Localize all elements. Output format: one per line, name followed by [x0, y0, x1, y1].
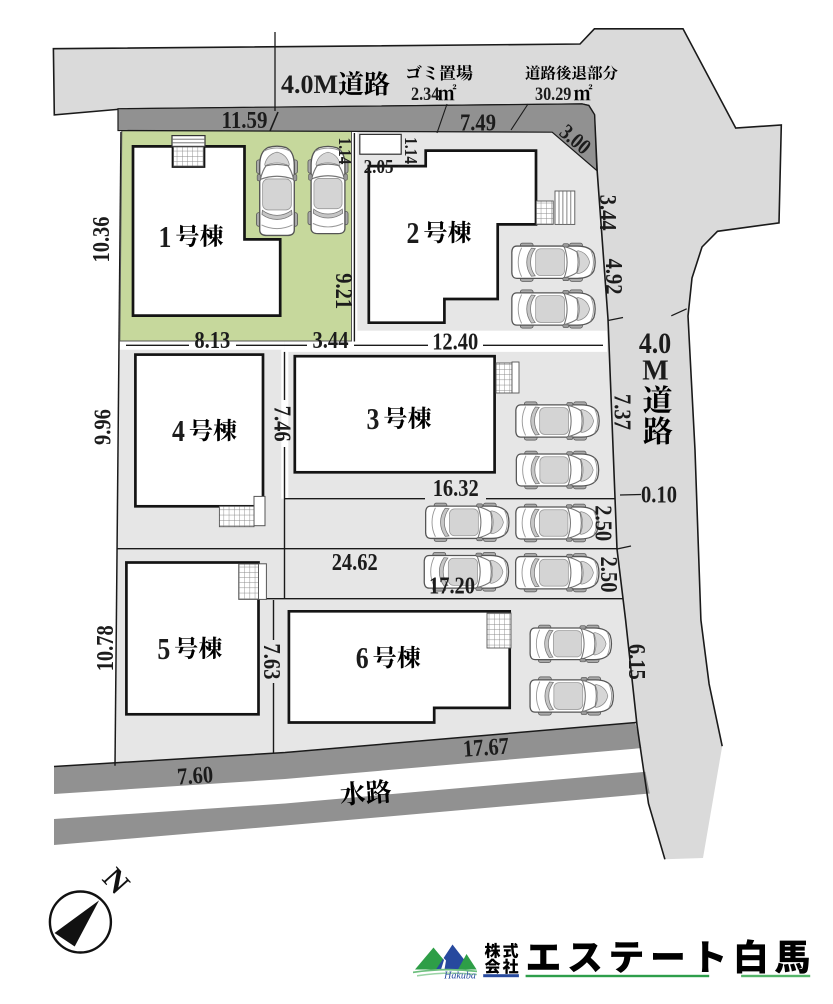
svg-text:30.29: 30.29: [535, 84, 571, 105]
svg-text:1.14: 1.14: [335, 138, 355, 165]
svg-text:2.50: 2.50: [595, 557, 621, 593]
svg-text:2.34: 2.34: [411, 84, 440, 105]
svg-text:12.40: 12.40: [432, 330, 478, 356]
svg-text:3.44: 3.44: [313, 328, 349, 354]
svg-text:1: 1: [159, 220, 172, 254]
svg-text:2.50: 2.50: [590, 505, 616, 541]
svg-text:6: 6: [356, 641, 369, 675]
svg-text:10.78: 10.78: [93, 625, 119, 671]
svg-text:3: 3: [367, 402, 380, 436]
svg-text:4: 4: [172, 414, 185, 448]
svg-text:2.05: 2.05: [364, 156, 394, 178]
svg-text:24.62: 24.62: [332, 550, 378, 576]
svg-text:5: 5: [157, 632, 170, 666]
svg-text:2: 2: [407, 216, 420, 250]
svg-text:4.92: 4.92: [600, 259, 626, 295]
svg-text:7.49: 7.49: [460, 111, 496, 137]
svg-text:4.0M: 4.0M: [281, 70, 338, 99]
svg-text:7.37: 7.37: [609, 394, 635, 430]
svg-text:M: M: [642, 356, 668, 387]
svg-text:7.46: 7.46: [269, 406, 295, 442]
svg-text:9.21: 9.21: [330, 273, 356, 309]
svg-text:1.14: 1.14: [401, 137, 421, 164]
svg-text:17.20: 17.20: [429, 574, 475, 600]
svg-text:7.60: 7.60: [176, 762, 214, 790]
svg-text:6.15: 6.15: [623, 644, 649, 680]
svg-text:8.13: 8.13: [194, 328, 230, 354]
svg-text:16.32: 16.32: [433, 476, 479, 502]
svg-text:0.10: 0.10: [641, 483, 677, 509]
svg-text:7.63: 7.63: [258, 644, 284, 680]
svg-text:Hakuba: Hakuba: [443, 971, 476, 982]
svg-text:9.96: 9.96: [90, 409, 116, 445]
svg-text:3.44: 3.44: [594, 195, 620, 231]
svg-text:11.59: 11.59: [222, 108, 268, 134]
svg-text:10.36: 10.36: [89, 217, 115, 263]
svg-text:17.67: 17.67: [462, 734, 510, 763]
